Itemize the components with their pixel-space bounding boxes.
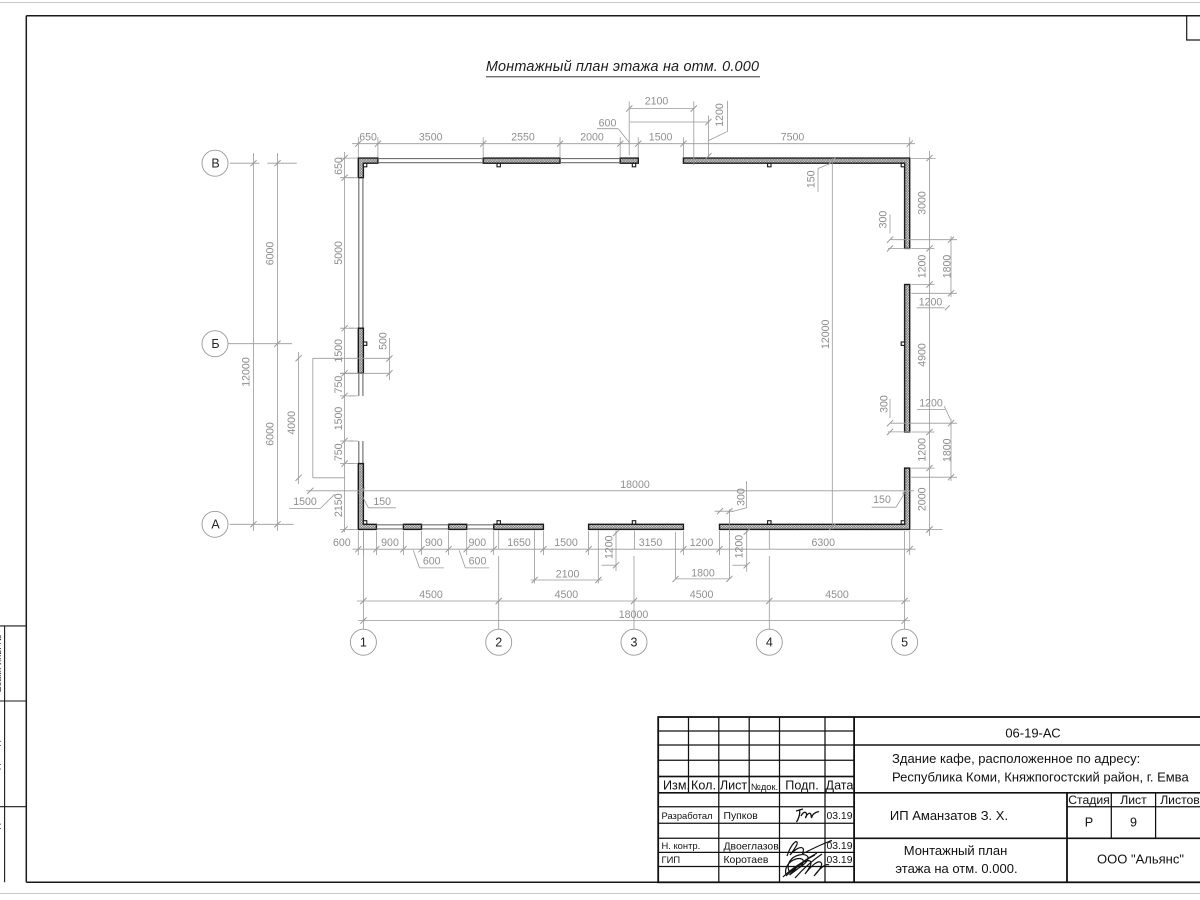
svg-text:1200: 1200 [690, 537, 714, 549]
svg-text:Монтажный план этажа на отм. 0: Монтажный план этажа на отм. 0.000 [486, 59, 759, 75]
svg-text:1200: 1200 [734, 535, 746, 559]
svg-text:6000: 6000 [265, 422, 277, 446]
svg-text:1800: 1800 [691, 567, 715, 579]
svg-text:Кол.: Кол. [691, 779, 716, 793]
svg-text:1200: 1200 [714, 103, 726, 127]
svg-text:Коротаев: Коротаев [724, 855, 769, 866]
svg-text:1: 1 [360, 636, 367, 650]
svg-text:500: 500 [377, 332, 389, 350]
svg-text:Подп. и дата: Подп. и дата [0, 726, 1, 782]
svg-text:Пупков: Пупков [724, 811, 759, 822]
svg-text:Лист: Лист [720, 779, 748, 793]
svg-text:12000: 12000 [820, 319, 832, 349]
svg-text:4000: 4000 [286, 411, 298, 435]
svg-text:2550: 2550 [511, 132, 535, 144]
svg-text:1200: 1200 [916, 438, 928, 462]
svg-text:2000: 2000 [916, 487, 928, 511]
svg-text:900: 900 [425, 537, 443, 549]
svg-text:1200: 1200 [919, 397, 943, 409]
svg-text:Изм.: Изм. [663, 779, 690, 793]
svg-text:1500: 1500 [554, 537, 578, 549]
svg-text:4500: 4500 [555, 589, 579, 601]
svg-text:Здание кафе, расположенное по: Здание кафе, расположенное по адресу: [892, 751, 1140, 766]
svg-text:600: 600 [469, 556, 487, 568]
svg-text:03.19: 03.19 [826, 841, 852, 852]
svg-text:18000: 18000 [619, 609, 649, 621]
svg-text:1800: 1800 [942, 438, 954, 462]
svg-text:600: 600 [599, 118, 617, 130]
svg-text:№док.: №док. [751, 782, 778, 792]
svg-text:300: 300 [878, 395, 890, 413]
svg-text:4500: 4500 [690, 589, 714, 601]
svg-text:3500: 3500 [419, 132, 443, 144]
svg-text:ГИП: ГИП [662, 854, 681, 865]
svg-text:Листов: Листов [1160, 793, 1200, 807]
svg-text:650: 650 [333, 157, 345, 175]
svg-text:Двоеглазов: Двоеглазов [724, 841, 780, 852]
svg-text:2100: 2100 [645, 95, 669, 107]
svg-text:2100: 2100 [556, 568, 580, 580]
svg-text:1500: 1500 [333, 339, 345, 363]
svg-text:150: 150 [873, 494, 891, 506]
svg-text:Республика Коми, Княжпогостски: Республика Коми, Княжпогостский район, г… [892, 770, 1189, 785]
svg-text:300: 300 [877, 211, 889, 229]
svg-text:6300: 6300 [812, 537, 836, 549]
svg-text:300: 300 [735, 488, 747, 506]
svg-text:06-19-АС: 06-19-АС [1005, 726, 1060, 741]
svg-text:1800: 1800 [942, 255, 954, 279]
svg-text:3: 3 [631, 636, 638, 650]
svg-text:03.19: 03.19 [826, 811, 852, 822]
svg-text:Инв. № подл.: Инв. № подл. [0, 816, 1, 874]
svg-text:Н. контр.: Н. контр. [662, 840, 701, 851]
svg-text:Р: Р [1085, 816, 1093, 830]
svg-text:4500: 4500 [825, 589, 849, 601]
svg-text:7500: 7500 [781, 132, 805, 144]
svg-text:750: 750 [333, 376, 345, 394]
svg-text:Монтажный план: Монтажный план [904, 843, 1008, 858]
svg-text:4500: 4500 [419, 589, 443, 601]
svg-text:2150: 2150 [333, 493, 345, 517]
svg-text:2: 2 [495, 636, 502, 650]
svg-text:5: 5 [901, 636, 908, 650]
svg-text:1200: 1200 [604, 535, 616, 559]
svg-text:03.19: 03.19 [826, 855, 852, 866]
svg-text:650: 650 [359, 132, 377, 144]
svg-text:Лист: Лист [1120, 793, 1147, 807]
svg-text:1650: 1650 [507, 537, 531, 549]
svg-text:1200: 1200 [916, 255, 928, 279]
svg-text:9: 9 [1130, 816, 1137, 830]
svg-text:Б: Б [211, 337, 219, 351]
svg-text:12000: 12000 [240, 357, 252, 387]
svg-text:5000: 5000 [333, 241, 345, 265]
svg-text:ИП Аманзатов З. Х.: ИП Аманзатов З. Х. [890, 808, 1008, 823]
svg-text:Подп.: Подп. [785, 779, 818, 793]
svg-text:В: В [211, 157, 219, 171]
svg-text:750: 750 [333, 443, 345, 461]
svg-text:600: 600 [423, 556, 441, 568]
svg-text:18000: 18000 [620, 479, 650, 491]
svg-text:1200: 1200 [919, 296, 943, 308]
svg-text:1500: 1500 [333, 407, 345, 431]
svg-text:Стадия: Стадия [1068, 793, 1110, 807]
svg-text:4: 4 [766, 636, 773, 650]
svg-text:ООО "Альянс": ООО "Альянс" [1097, 852, 1184, 867]
svg-text:150: 150 [373, 496, 391, 508]
svg-text:6000: 6000 [265, 242, 277, 266]
svg-text:Разработал: Разработал [662, 810, 713, 821]
svg-text:4900: 4900 [916, 343, 928, 367]
svg-text:2000: 2000 [580, 132, 604, 144]
svg-text:этажа на отм. 0.000.: этажа на отм. 0.000. [895, 861, 1017, 876]
svg-text:1500: 1500 [649, 132, 673, 144]
svg-text:Взам. инв. №: Взам. инв. № [0, 635, 3, 693]
svg-text:Дата: Дата [826, 779, 854, 793]
svg-text:600: 600 [333, 537, 351, 549]
svg-text:900: 900 [381, 537, 399, 549]
svg-text:150: 150 [805, 170, 817, 188]
svg-text:3150: 3150 [639, 537, 663, 549]
svg-text:1500: 1500 [293, 496, 317, 508]
svg-text:А: А [211, 518, 220, 532]
svg-text:3000: 3000 [916, 191, 928, 215]
svg-text:900: 900 [468, 537, 486, 549]
